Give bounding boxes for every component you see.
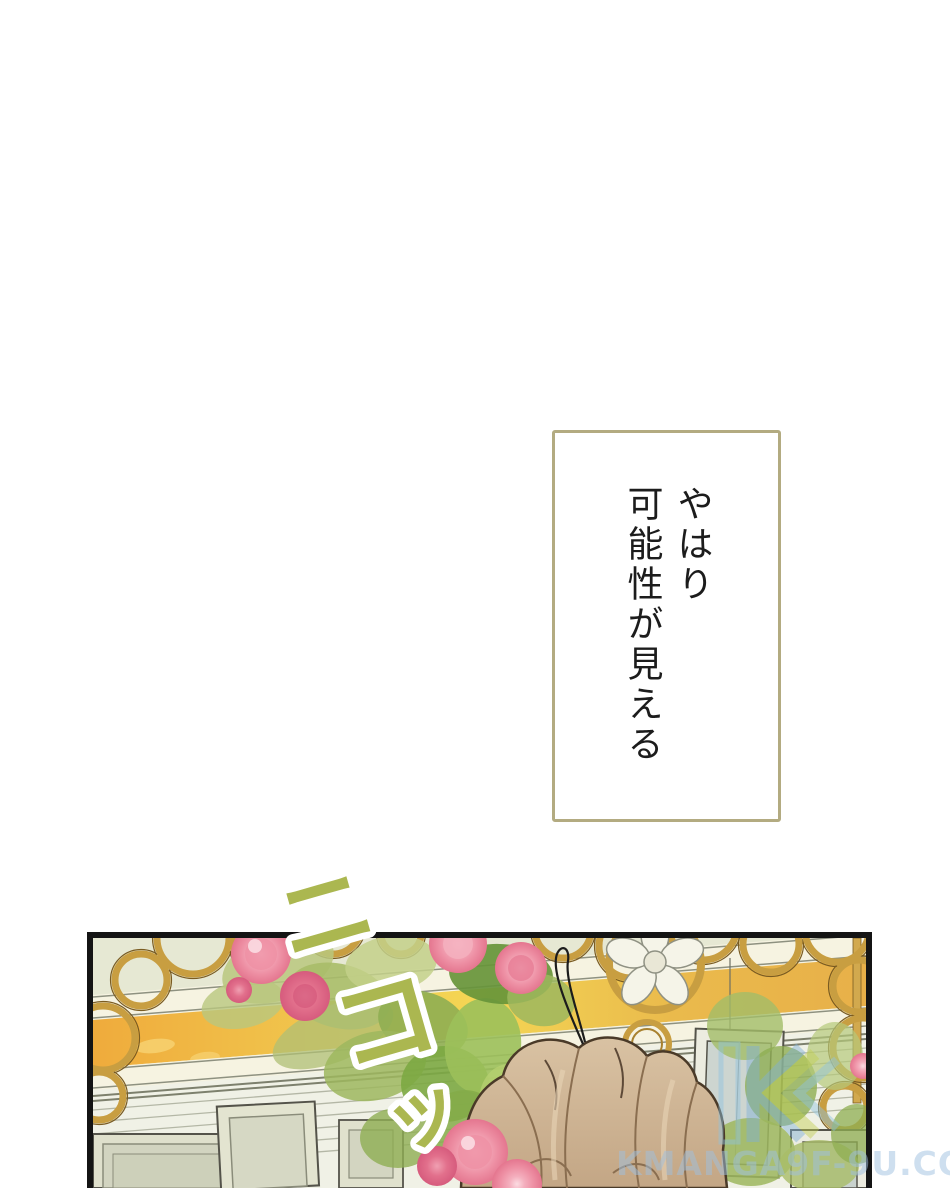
sfx-nikko: ニ コ ッ — [230, 840, 520, 1180]
watermark-text: KMANGA9F-9U.COM — [616, 1144, 950, 1183]
bubble-text: やはり 可能性が見える — [617, 485, 717, 765]
bubble-line: やはり — [667, 485, 717, 765]
sfx-char-ni: ニ — [265, 849, 387, 981]
bubble-line: 可能性が見える — [617, 485, 667, 765]
speech-bubble: やはり 可能性が見える — [552, 430, 781, 822]
manga-page: やはり 可能性が見える ニ コ ッ — [0, 0, 950, 1188]
